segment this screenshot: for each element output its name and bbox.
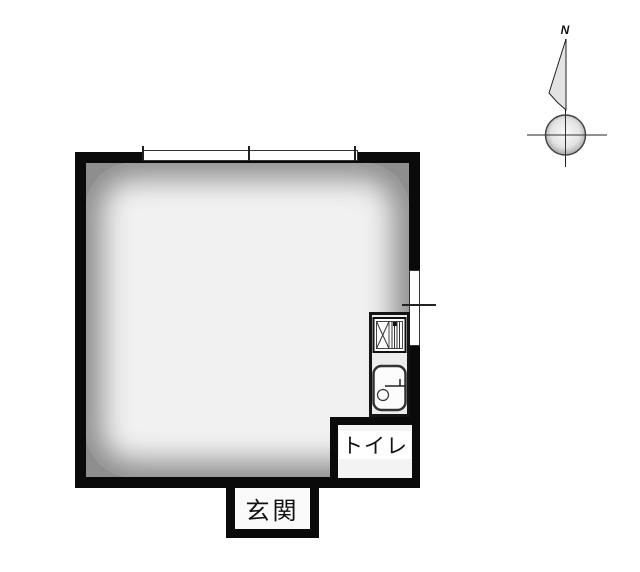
window-tick-right <box>354 146 356 161</box>
top-window-icon <box>143 150 358 161</box>
floor-plan-canvas: トイレ 玄関 N <box>0 0 640 572</box>
toilet-room-floor: トイレ <box>338 425 412 478</box>
compass-icon: N <box>515 12 615 172</box>
toilet-label: トイレ <box>339 431 411 459</box>
north-label: N <box>561 23 570 37</box>
kitchen-unit <box>369 312 410 417</box>
window-tick-left <box>142 146 144 161</box>
kitchen-fixtures-icon <box>372 315 407 414</box>
toilet-room: トイレ <box>330 417 420 488</box>
gas-stove-icon <box>374 318 406 352</box>
window-tick-center <box>248 146 250 161</box>
sink-icon <box>374 366 407 410</box>
right-window-icon <box>409 270 420 346</box>
right-window-tick <box>402 304 436 306</box>
entrance-label: 玄関 <box>235 488 310 529</box>
entrance-room: 玄関 <box>226 477 319 538</box>
north-needle-icon <box>549 39 566 110</box>
